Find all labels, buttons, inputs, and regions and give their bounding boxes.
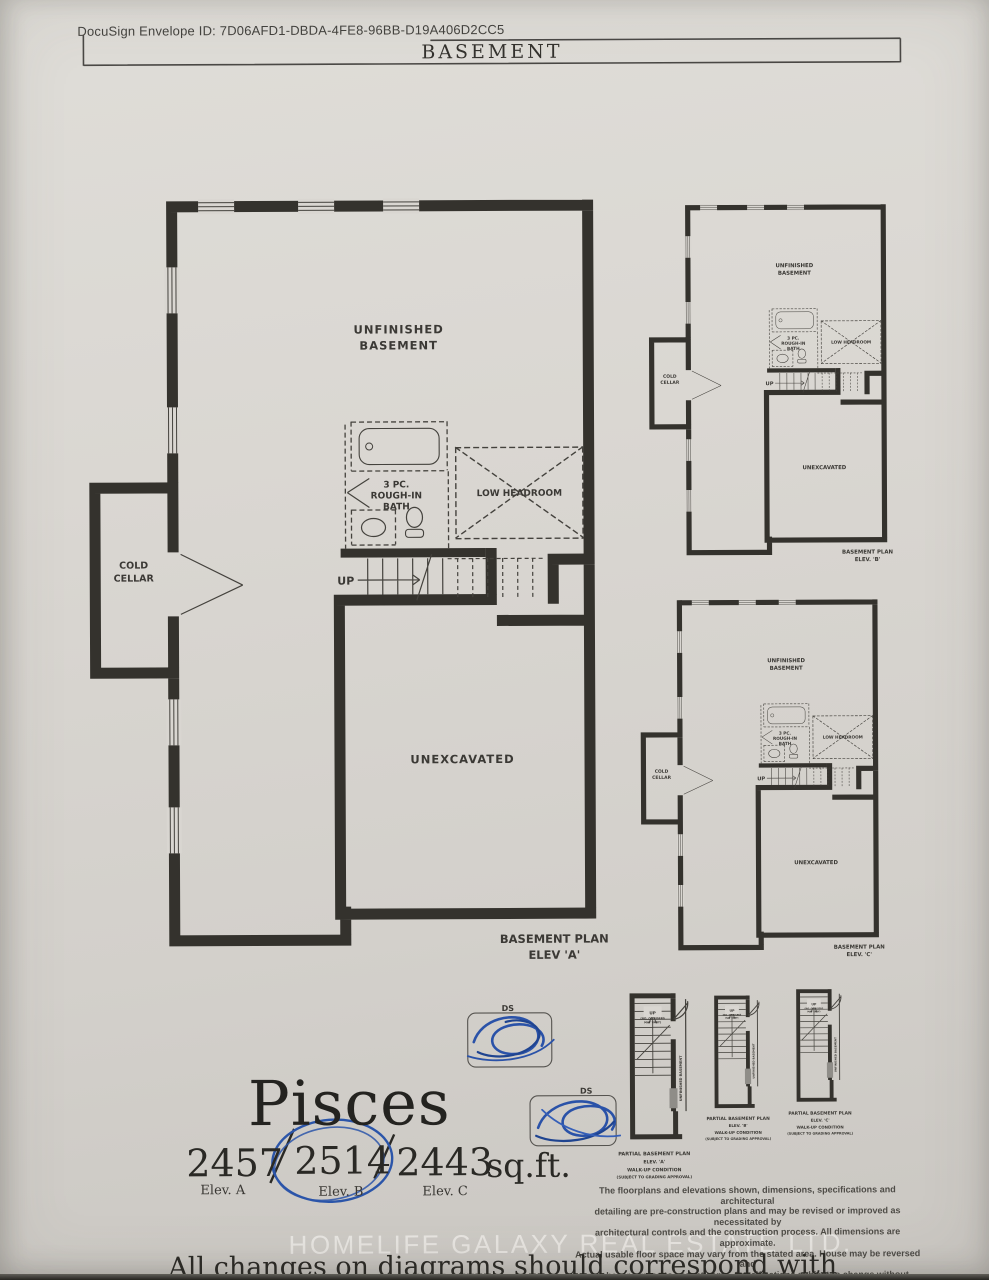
partial-plan-a: UP (NO. OF RISERS MAY VARY) UNFINISHED B…	[616, 993, 693, 1179]
up-label: UP	[757, 776, 765, 782]
plan-caption-elev-b: BASEMENT PLAN	[842, 549, 894, 555]
bath-label: BATH	[787, 346, 800, 351]
room-label-cold-cellar: CELLAR	[114, 573, 155, 584]
room-label-unexcavated: UNEXCAVATED	[803, 465, 847, 471]
plan-caption-elev-c: BASEMENT PLAN	[834, 945, 886, 951]
side-label: UNFINISHED BASEMENT	[679, 1055, 683, 1101]
scan-content: DocuSign Envelope ID: 7D06AFD1-DBDA-4FE8…	[0, 0, 989, 1280]
elev-c-floor-plan: UNFINISHED BASEMENT COLD CELLAR 3 PC. RO…	[640, 598, 885, 959]
disclaimer-line: architectural controls and the construct…	[575, 1227, 921, 1250]
sqft-value-elev-c: 2443	[396, 1140, 493, 1184]
partial-caption: (SUBJECT TO GRADING APPROVAL)	[617, 1174, 693, 1179]
plan-caption-elev-a: ELEV 'A'	[528, 948, 580, 962]
room-label-unfinished-basement: BASEMENT	[778, 271, 811, 277]
disclaimer-line: The floorplans and elevations shown, dim…	[574, 1184, 920, 1207]
sqft-value-elev-b: 2514	[294, 1138, 391, 1182]
main-floor-plan: UNFINISHED BASEMENT COLD CELLAR 3 PC. RO…	[88, 198, 609, 964]
room-label-unfinished-basement: BASEMENT	[770, 666, 803, 672]
bath-label: ROUGH-IN	[781, 341, 806, 346]
bath-label: 3 PC.	[787, 336, 800, 341]
room-label-unexcavated: UNEXCAVATED	[410, 752, 514, 766]
partial-caption: PARTIAL BASEMENT PLAN	[788, 1110, 852, 1116]
room-label-cold-cellar: COLD	[663, 374, 677, 380]
room-label-unfinished-basement: UNFINISHED	[776, 263, 814, 269]
model-name: Pisces	[248, 1066, 451, 1140]
partial-caption: ELEV. 'C'	[811, 1118, 830, 1123]
sqft-value-elev-a: 2457	[186, 1141, 283, 1185]
partial-caption: (SUBJECT TO GRADING APPROVAL)	[705, 1137, 771, 1141]
sheet-title-box	[83, 31, 900, 66]
bath-label: 3 PC.	[779, 731, 792, 736]
room-label-cold-cellar: COLD	[655, 769, 669, 775]
bath-label: BATH	[779, 741, 792, 746]
scanned-floorplan-page: DocuSign Envelope ID: 7D06AFD1-DBDA-4FE8…	[0, 0, 989, 1280]
elev-b-floor-plan: UNFINISHED BASEMENT COLD CELLAR 3 PC. RO…	[648, 203, 893, 564]
risers-note: MAY VARY)	[725, 1017, 738, 1020]
bath-label: BATH	[383, 502, 410, 512]
sqft-unit: sq.ft.	[486, 1146, 571, 1185]
room-label-unfinished-basement: UNFINISHED	[767, 658, 805, 664]
up-label: UP	[811, 1002, 817, 1006]
partial-plan-b: UP (NO. OF RISERS MAY VARY) UNFINISHED B…	[705, 995, 772, 1141]
partial-caption: PARTIAL BASEMENT PLAN	[618, 1151, 690, 1157]
plan-caption-elev-b: ELEV. 'B'	[855, 557, 881, 563]
room-label-unfinished-basement: BASEMENT	[359, 338, 438, 352]
up-label: UP	[766, 381, 774, 387]
low-headroom-label: LOW HEADROOM	[823, 735, 863, 740]
partial-caption: ELEV. 'B'	[729, 1123, 748, 1128]
photo-edge	[0, 1274, 989, 1280]
side-label: UNFINISHED BASEMENT	[751, 1043, 755, 1078]
bath-label: ROUGH-IN	[371, 491, 422, 501]
low-headroom-label: LOW HEADROOM	[477, 489, 563, 499]
room-label-unexcavated: UNEXCAVATED	[794, 860, 838, 866]
bath-label: ROUGH-IN	[773, 736, 798, 741]
plan-caption-elev-a: BASEMENT PLAN	[500, 932, 609, 946]
partial-caption: WALK-UP CONDITION	[627, 1167, 682, 1173]
initial-scribble-2: DS	[530, 1086, 620, 1145]
up-label: UP	[649, 1010, 656, 1015]
room-label-cold-cellar: CELLAR	[652, 775, 671, 781]
room-label-cold-cellar: CELLAR	[660, 380, 679, 386]
initial-scribble-1: DS	[468, 1004, 554, 1067]
partial-caption: ELEV. 'A'	[643, 1159, 665, 1165]
partial-caption: (SUBJECT TO GRADING APPROVAL)	[787, 1131, 853, 1135]
partial-caption: WALK-UP CONDITION	[796, 1124, 843, 1129]
room-label-unfinished-basement: UNFINISHED	[353, 322, 443, 336]
low-headroom-label: LOW HEADROOM	[831, 339, 871, 344]
up-label: UP	[729, 1009, 735, 1013]
side-label: UNFINISHED BASEMENT	[833, 1037, 837, 1072]
partial-plan-c: UP (NO. OF RISERS MAY VARY) UNFINISHED B…	[787, 989, 854, 1136]
ds-tag: DS	[580, 1087, 593, 1096]
partial-caption: PARTIAL BASEMENT PLAN	[706, 1116, 770, 1122]
elev-label-b: Elev. B	[318, 1185, 363, 1200]
elev-label-c: Elev. C	[422, 1184, 467, 1199]
partial-caption: WALK-UP CONDITION	[714, 1130, 761, 1135]
risers-note: MAY VARY)	[644, 1020, 662, 1024]
disclaimer-line: detailing are pre-construction plans and…	[574, 1205, 920, 1228]
risers-note: MAY VARY)	[807, 1010, 820, 1013]
bath-label: 3 PC.	[383, 480, 409, 490]
elev-label-a: Elev. A	[200, 1183, 245, 1198]
ds-tag: DS	[502, 1004, 515, 1013]
floorplan-drawing: UNFINISHED BASEMENT COLD CELLAR 3 PC. RO…	[0, 0, 989, 1280]
plan-caption-elev-c: ELEV. 'C'	[847, 952, 873, 958]
room-label-cold-cellar: COLD	[119, 561, 148, 572]
up-label: UP	[337, 575, 354, 588]
